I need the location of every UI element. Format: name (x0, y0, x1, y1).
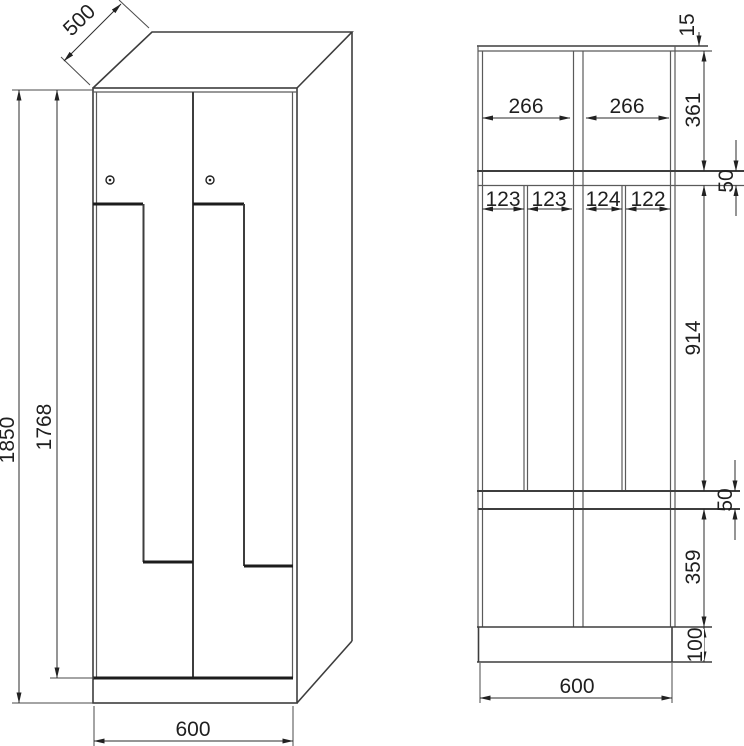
lower-shelf (477, 491, 740, 509)
dim-lower-shelf-thickness: 50 (714, 488, 737, 511)
z-door-split-right (193, 204, 293, 566)
dim-upper-width-left: 266 (508, 95, 543, 118)
cabinet-front-face (93, 88, 297, 703)
section-view-dimensions: 15 361 50 914 50 359 100 (480, 13, 738, 703)
dim-top-gap: 15 (676, 13, 699, 36)
dim-depth: 500 (59, 0, 100, 41)
dim-column-width-4: 122 (630, 188, 665, 211)
dim-front-width: 600 (175, 718, 210, 741)
section-carcass (477, 46, 712, 627)
column-dividers (524, 186, 626, 492)
lock-cylinder-icon (106, 176, 114, 184)
drawing-canvas: 1850 1768 500 600 (0, 0, 744, 746)
dim-column-width-3: 124 (585, 188, 620, 211)
dim-total-height: 1850 (0, 417, 19, 464)
dim-column-width-1: 123 (485, 188, 520, 211)
dim-door-height: 1768 (33, 404, 56, 451)
dim-upper-width-right: 266 (609, 95, 644, 118)
section-view: 15 361 50 914 50 359 100 (477, 13, 744, 703)
dim-upper-shelf-thickness: 50 (715, 169, 738, 192)
lock-cylinder-icon (206, 176, 214, 184)
plinth (477, 627, 712, 662)
upper-shelf (477, 171, 744, 186)
dim-section-width: 600 (559, 675, 594, 698)
cabinet-top-face (93, 32, 352, 703)
front-view-dimensions: 1850 1768 500 600 (0, 0, 293, 746)
dim-plinth-height: 100 (684, 627, 707, 662)
dim-upper-compartment-height: 361 (682, 92, 705, 127)
dim-main-compartment-height: 914 (682, 320, 705, 355)
dim-column-width-2: 123 (531, 188, 566, 211)
dim-lower-compartment-height: 359 (682, 549, 705, 584)
locker-dimension-drawing: 1850 1768 500 600 (0, 0, 744, 746)
front-view: 1850 1768 500 600 (0, 0, 352, 746)
z-door-split-left (93, 204, 193, 562)
